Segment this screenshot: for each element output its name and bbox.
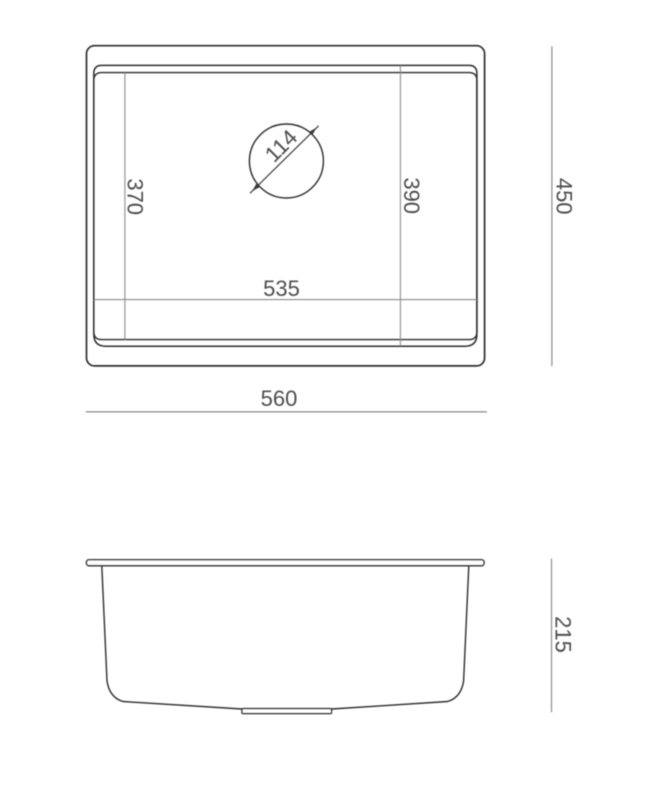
svg-text:450: 450	[552, 178, 577, 215]
svg-text:370: 370	[123, 178, 148, 215]
svg-text:215: 215	[551, 616, 576, 653]
svg-text:535: 535	[263, 276, 300, 301]
svg-text:560: 560	[261, 386, 298, 411]
svg-text:390: 390	[399, 177, 424, 214]
